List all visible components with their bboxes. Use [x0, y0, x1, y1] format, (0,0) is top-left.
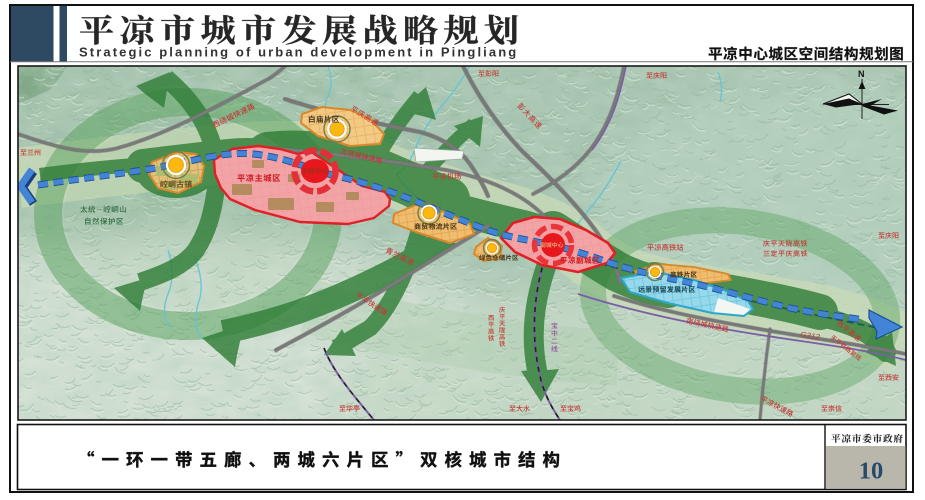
svg-text:10: 10: [859, 458, 884, 485]
svg-text:Strategic planning of urban de: Strategic planning of urban development …: [79, 45, 518, 60]
svg-text:N: N: [858, 69, 865, 79]
